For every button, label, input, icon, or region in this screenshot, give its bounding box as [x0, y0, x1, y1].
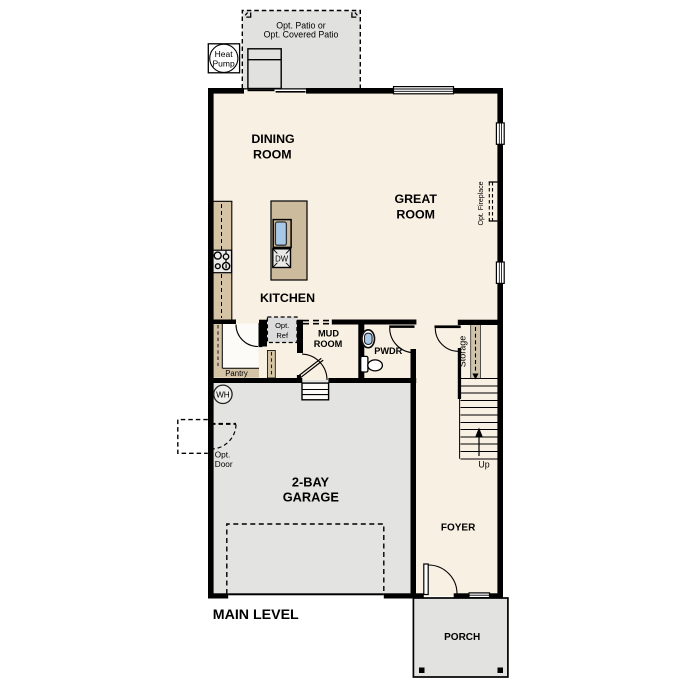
svg-text:MAIN LEVEL: MAIN LEVEL: [213, 607, 299, 623]
svg-text:Door: Door: [215, 460, 233, 469]
svg-text:Opt. Covered Patio: Opt. Covered Patio: [264, 30, 339, 40]
svg-text:DW: DW: [275, 254, 289, 263]
svg-text:WH: WH: [216, 390, 230, 399]
svg-text:ROOM: ROOM: [314, 339, 343, 349]
svg-text:GARAGE: GARAGE: [283, 490, 340, 505]
svg-text:2-BAY: 2-BAY: [292, 475, 330, 490]
svg-text:Pump: Pump: [212, 59, 234, 69]
svg-text:Pantry: Pantry: [225, 369, 248, 378]
svg-text:Opt.: Opt.: [215, 451, 230, 460]
svg-text:ROOM: ROOM: [396, 208, 435, 222]
svg-text:DINING: DINING: [251, 132, 294, 146]
svg-text:PWDR: PWDR: [374, 346, 402, 356]
svg-text:PORCH: PORCH: [444, 632, 480, 643]
svg-text:Storage: Storage: [458, 336, 468, 368]
svg-text:FOYER: FOYER: [441, 523, 476, 534]
svg-text:MUD: MUD: [318, 328, 339, 338]
svg-text:Heat: Heat: [215, 49, 234, 59]
svg-text:Opt. Fireplace: Opt. Fireplace: [478, 181, 485, 225]
svg-text:Opt.: Opt.: [275, 321, 289, 330]
svg-text:Ref: Ref: [276, 331, 289, 340]
svg-text:GREAT: GREAT: [394, 192, 437, 206]
svg-text:KITCHEN: KITCHEN: [260, 291, 315, 305]
svg-text:Up: Up: [478, 459, 489, 469]
svg-text:ROOM: ROOM: [253, 148, 292, 162]
